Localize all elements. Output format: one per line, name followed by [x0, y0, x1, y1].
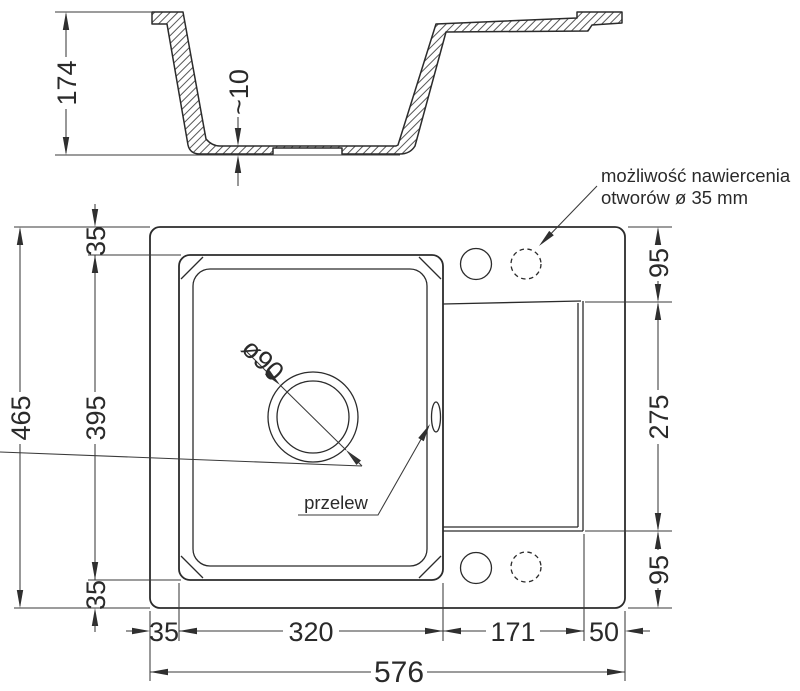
annotation-drill-note: możliwość nawiercenia otworów ø 35 mm — [537, 165, 791, 248]
dim-total-width: 576 — [150, 656, 625, 689]
dim-label-drainer-width: 171 — [490, 617, 535, 647]
faucet-hole-optional-top — [511, 249, 541, 279]
dim-label-drain-diameter: ø90 — [236, 333, 290, 387]
dim-label-bowl-width: 320 — [288, 617, 333, 647]
plan-view: możliwość nawiercenia otworów ø 35 mm pr… — [0, 165, 791, 689]
annotation-overflow: przelew — [298, 422, 433, 515]
dim-margin-left: 35 — [126, 617, 179, 647]
faucet-hole-drilled-bottom — [461, 553, 492, 584]
bowl-rim-outline — [179, 255, 443, 580]
section-profile — [152, 12, 622, 154]
dim-label-section-height: 174 — [52, 60, 82, 105]
dim-label-deck-top: 95 — [644, 248, 674, 278]
dim-section-height: 174 — [52, 12, 82, 155]
drainer-board — [443, 301, 583, 531]
overflow-oval — [432, 402, 441, 432]
dim-drainer-length: 275 — [644, 302, 674, 531]
dim-margin-bottom: 35 — [81, 580, 111, 632]
dim-drainer-width: 171 — [443, 617, 584, 647]
dim-label-margin-top: 35 — [81, 226, 111, 256]
dim-label-total-height: 465 — [6, 395, 36, 440]
faucet-hole-drilled-top — [461, 249, 492, 280]
dim-margin-right: 50 — [589, 617, 650, 647]
drawing-svg: 174 ~10 — [0, 0, 800, 691]
dim-bowl-length: 395 — [81, 255, 111, 580]
dims-bottom: 35 320 171 50 — [126, 534, 650, 689]
drainer-right-edge — [578, 301, 583, 531]
faucet-hole-optional-bottom — [511, 552, 541, 582]
sink-outline — [150, 227, 625, 608]
dim-label-deck-bottom: 95 — [644, 555, 674, 585]
dim-bottom-thickness: ~10 — [224, 69, 254, 186]
technical-drawing-sink: 174 ~10 — [0, 0, 800, 691]
dim-label-bottom-thickness: ~10 — [224, 69, 254, 115]
dim-deck-bottom: 95 — [644, 531, 674, 608]
dims-right: 95 275 95 — [585, 227, 674, 608]
drainer-bottom-edge — [443, 527, 583, 531]
dim-label-bowl-length: 395 — [81, 395, 111, 440]
dim-deck-top: 95 — [644, 227, 674, 302]
dim-label-drainer-length: 275 — [644, 394, 674, 439]
dim-bowl-width: 320 — [179, 617, 443, 647]
overflow-label: przelew — [304, 492, 368, 513]
faucet-holes — [461, 249, 542, 584]
dim-label-margin-bottom: 35 — [81, 580, 111, 610]
bowl — [179, 255, 443, 580]
dim-drain-diameter: ø90 — [0, 333, 362, 466]
dims-left: 465 35 395 35 — [6, 204, 181, 632]
dim-margin-top: 35 — [81, 204, 111, 256]
dim-label-margin-left: 35 — [149, 617, 179, 647]
bowl-corner-chamfers — [181, 257, 441, 578]
section-view: 174 ~10 — [52, 12, 622, 186]
dim-total-height: 465 — [6, 227, 36, 608]
dim-label-margin-right: 50 — [589, 617, 619, 647]
drainer-top-edge — [443, 301, 581, 304]
drill-note-line1: możliwość nawiercenia — [601, 165, 791, 186]
drill-note-line2: otworów ø 35 mm — [601, 187, 748, 208]
bowl-bottom-outline — [193, 269, 427, 566]
dim-label-total-width: 576 — [374, 656, 424, 689]
